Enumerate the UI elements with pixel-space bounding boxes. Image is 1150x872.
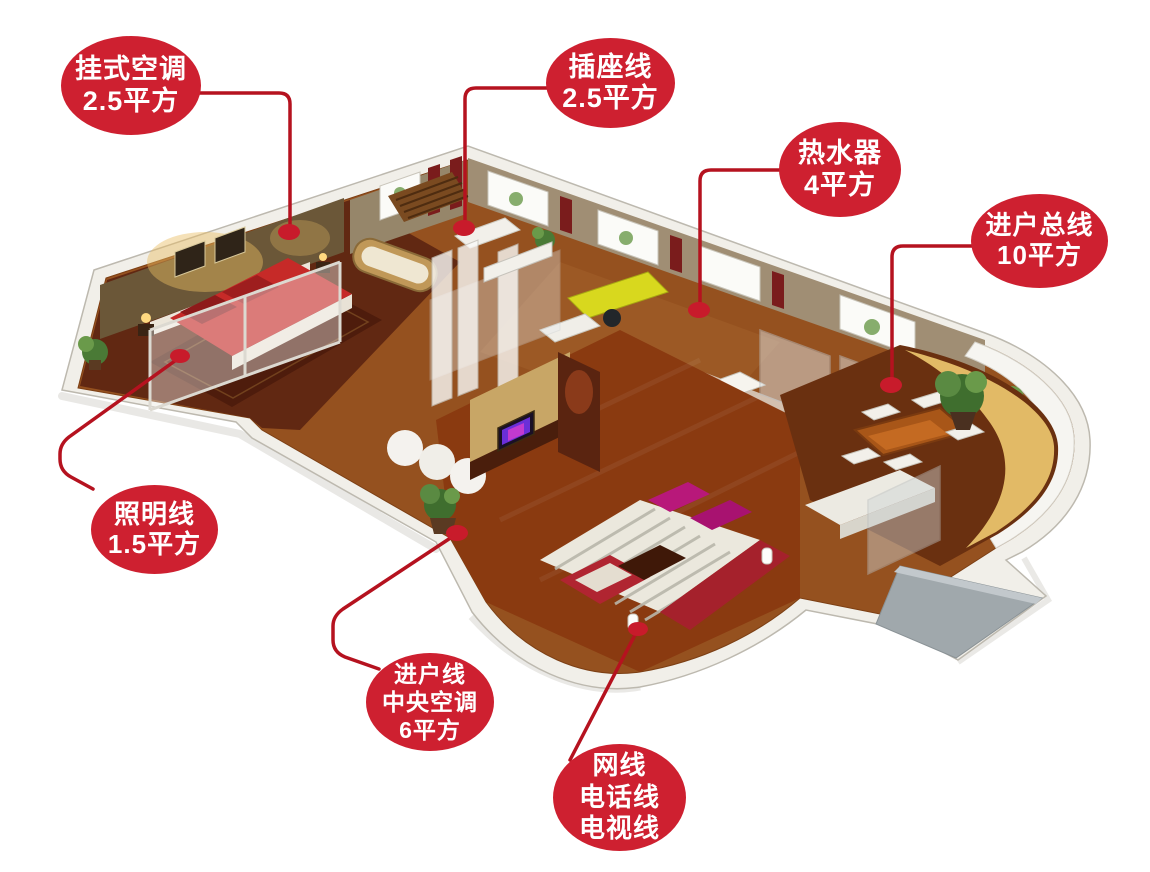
callout-text: 6平方: [399, 716, 461, 744]
callout-text: 4平方: [804, 170, 876, 201]
callout-socket-line: 插座线 2.5平方: [546, 38, 675, 128]
callout-text: 插座线: [569, 52, 653, 83]
floorplan-render: [0, 0, 1150, 872]
callout-dot-entry-ac: [446, 525, 468, 541]
callout-text: 挂式空调: [75, 54, 187, 85]
callout-dot-entry-main: [880, 377, 902, 393]
callout-dot-heater: [688, 302, 710, 318]
callout-lighting-line: 照明线 1.5平方: [91, 485, 218, 574]
callout-text: 1.5平方: [108, 530, 201, 560]
callout-entry-main-line: 进户总线 10平方: [971, 194, 1108, 288]
callout-text: 10平方: [997, 241, 1082, 271]
callout-text: 进户线: [394, 660, 466, 688]
callout-text: 电视线: [579, 813, 660, 845]
callout-dot-signal: [628, 622, 648, 636]
callout-line-wall-ac: [196, 93, 290, 225]
callout-dot-lighting: [170, 349, 190, 363]
wiring-infographic: 挂式空调 2.5平方 插座线 2.5平方 热水器 4平方 进户总线 10平方 照…: [0, 0, 1150, 872]
callout-text: 照明线: [114, 500, 195, 530]
callout-text: 电话线: [579, 782, 660, 814]
callout-line-entry-ac: [333, 535, 455, 669]
callout-text: 进户总线: [985, 211, 1093, 241]
callout-signal-lines: 网线 电话线 电视线: [553, 744, 686, 851]
callout-entry-central-ac: 进户线 中央空调 6平方: [366, 653, 494, 751]
callout-wall-ac: 挂式空调 2.5平方: [61, 36, 201, 135]
callout-text: 网线: [592, 750, 646, 782]
callout-text: 热水器: [798, 138, 882, 169]
callout-dot-wall-ac: [278, 224, 300, 240]
callout-text: 中央空调: [382, 688, 478, 716]
callout-text: 2.5平方: [83, 86, 180, 117]
callout-dot-socket: [453, 220, 475, 236]
callout-water-heater: 热水器 4平方: [779, 122, 901, 217]
callout-text: 2.5平方: [562, 83, 659, 114]
